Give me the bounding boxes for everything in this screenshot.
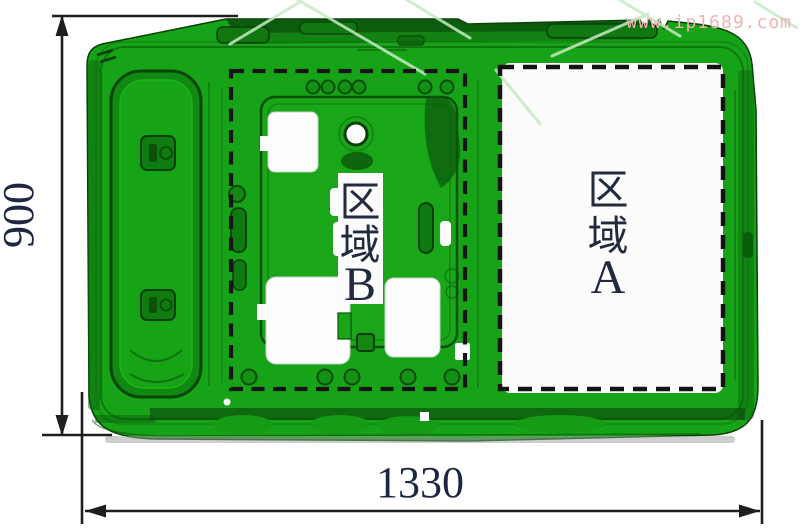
diagram-canvas: 900 1330 区 域 A 区 域 B www.ip1689.com (0, 0, 800, 532)
shading-detail (88, 60, 100, 410)
cutout (260, 136, 269, 151)
shading-detail (141, 136, 175, 170)
shading-detail (338, 313, 351, 339)
shading-detail (341, 152, 373, 170)
panel-shadow (105, 436, 735, 443)
bolt-bump (401, 370, 416, 385)
panel-left-recess (111, 71, 201, 397)
recess-clip-feature (141, 136, 175, 170)
cutout (385, 278, 440, 357)
bolt-bump (322, 81, 335, 94)
width-dimension-value: 1330 (376, 458, 464, 507)
shading-detail (141, 290, 175, 320)
cutout (440, 221, 451, 246)
region-b-label-line-3: B (344, 258, 376, 311)
shading-detail (515, 415, 605, 433)
shading-detail (213, 415, 273, 435)
shading-detail (149, 144, 157, 162)
shading-detail (231, 208, 246, 252)
bolt-bump (345, 370, 360, 385)
bolt-bump (441, 81, 454, 94)
region-a-label-line-3: A (591, 251, 626, 304)
bolt-bump (353, 81, 366, 94)
cutout (266, 277, 350, 364)
cutout (420, 412, 429, 421)
shading-detail (310, 415, 370, 435)
cutout (224, 399, 231, 406)
shading-detail (743, 232, 753, 258)
cutout (268, 112, 318, 172)
watermark-url-text: www.ip1689.com (626, 12, 792, 33)
recess-inner (120, 80, 192, 388)
bolt-bump (339, 81, 352, 94)
height-dimension-value: 900 (0, 182, 43, 248)
bolt-bump (445, 370, 460, 385)
cutout (257, 304, 267, 320)
recess-clip-feature (141, 290, 175, 320)
shading-detail (149, 297, 157, 313)
bolt-bump (318, 370, 333, 385)
region-b-label: 区 域 B (338, 173, 383, 311)
bolt-bump (242, 370, 257, 385)
cutout (455, 343, 470, 360)
region-a-label: 区 域 A (588, 167, 629, 304)
bolt-bump (419, 81, 432, 94)
shading-detail (95, 415, 155, 423)
bolt-bump (307, 81, 320, 94)
shading-detail (398, 36, 424, 45)
cutout-circle (345, 123, 367, 145)
region-b-label-line-1: 区 (340, 179, 381, 225)
shading-detail (419, 203, 433, 253)
shading-detail (233, 260, 246, 290)
diagram-page: 900 1330 区 域 A 区 域 B www.ip1689.com (0, 0, 800, 532)
shading-detail (357, 334, 374, 351)
region-a-label-line-1: 区 (588, 167, 629, 213)
